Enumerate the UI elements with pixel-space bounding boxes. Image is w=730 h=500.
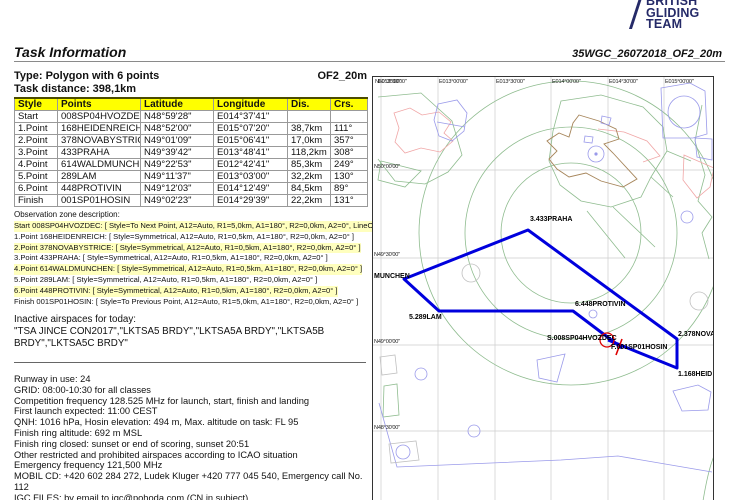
task-map: N50°30'00"E012°30'00"E013°00'00"E013°30'… [372, 76, 714, 500]
waypoint-label: F.001SP01HOSIN [611, 344, 667, 351]
table-cell: 85,3km [288, 159, 331, 171]
table-cell: E014°12'49" [214, 183, 288, 195]
grid-latitude-label: N49°30'00" [374, 252, 400, 258]
waypoint-label: S.008SP04HVOZDEC [547, 335, 617, 342]
table-row: Finish001SP01HOSINN49°02'23"E014°29'39"2… [15, 195, 368, 207]
table-cell: 289LAM [58, 171, 141, 183]
briefing-line: Finish ring closed: sunset or end of sco… [14, 439, 370, 450]
table-cell: 89° [331, 183, 368, 195]
table-row: 5.Point289LAMN49°11'37"E013°03'00"32,2km… [15, 171, 368, 183]
table-cell: E014°37'41" [214, 111, 288, 123]
task-information-page: BRITISH GLIDING TEAM Task Information 35… [0, 0, 730, 500]
waypoint-label: 2.378NOVA [678, 331, 714, 338]
table-cell: N49°01'09" [141, 135, 214, 147]
british-gliding-team-logo: BRITISH GLIDING TEAM [622, 0, 727, 38]
table-cell: 22,2km [288, 195, 331, 207]
table-cell: 448PROTIVIN [58, 183, 141, 195]
grid-latitude-label: N48°30'00" [374, 425, 400, 431]
table-cell: E013°03'00" [214, 171, 288, 183]
table-cell: E012°42'41" [214, 159, 288, 171]
waypoint-table: StylePointsLatitudeLongitudeDis.Crs. Sta… [14, 97, 368, 207]
table-row: 4.Point614WALDMUNCHENN49°22'53"E012°42'4… [15, 159, 368, 171]
task-distance: Task distance: 398,1km [14, 83, 136, 95]
oz-line: 5.Point 289LAM: [ Style=Symmetrical, A12… [14, 275, 367, 286]
briefing-line: Emergency frequency 121,500 MHz [14, 460, 370, 471]
table-cell: 614WALDMUNCHEN [58, 159, 141, 171]
table-cell: 130° [331, 171, 368, 183]
airspace-green-layer [378, 81, 713, 500]
airspace-praha-ctr [547, 115, 637, 187]
grid-longitude-label: E013°00'00" [439, 79, 468, 85]
inactive-airspaces-list: "TSA JINCE CON2017","LKTSA5 BRDY","LKTSA… [14, 326, 366, 349]
table-row: 3.Point433PRAHAN49°39'42"E013°48'41"118,… [15, 147, 368, 159]
column-header: Style [15, 98, 58, 111]
briefing-line: GRID: 08:00-10:30 for all classes [14, 385, 370, 396]
table-cell: Start [15, 111, 58, 123]
table-cell: 168HEIDENREICH [58, 123, 141, 135]
table-row: Start008SP04HVOZDECN48°59'28"E014°37'41" [15, 111, 368, 123]
logo-text: BRITISH GLIDING TEAM [646, 0, 699, 31]
briefing-line: First launch expected: 11:00 CEST [14, 406, 370, 417]
oz-line-text: 5.Point 289LAM: [ Style=Symmetrical, A12… [14, 275, 317, 286]
briefing-line: MOBIL CD: +420 602 284 272, Ludek Kluger… [14, 471, 370, 493]
table-cell [331, 111, 368, 123]
table-cell: 433PRAHA [58, 147, 141, 159]
table-cell: 131° [331, 195, 368, 207]
briefing-line: IGC FILES: by email to igc@pohoda.com (C… [14, 493, 370, 500]
table-cell: 357° [331, 135, 368, 147]
document-reference: 35WGC_26072018_OF2_20m [572, 48, 722, 60]
oz-line-text: 2.Point 378NOVABYSTRICE: [ Style=Symmetr… [14, 243, 361, 254]
oz-line-text: 4.Point 614WALDMUNCHEN: [ Style=Symmetri… [14, 264, 362, 275]
grid-longitude-label: E013°30'00" [496, 79, 525, 85]
oz-line-text: 1.Point 168HEIDENREICH: [ Style=Symmetri… [14, 232, 354, 243]
table-cell: E015°06'41" [214, 135, 288, 147]
table-cell: 001SP01HOSIN [58, 195, 141, 207]
observation-zone-title: Observation zone description: [14, 210, 120, 219]
oz-line-text: 6.Point 448PROTIVIN: [ Style=Symmetrical… [14, 286, 338, 297]
waypoint-label: 5.289LAM [409, 314, 442, 321]
grid-longitude-label: E014°00'00" [552, 79, 581, 85]
oz-line-text: Start 008SP04HVOZDEC: [ Style=To Next Po… [14, 221, 383, 232]
briefing-line: QNH: 1016 hPa, Hosin elevation: 494 m, M… [14, 417, 370, 428]
table-row: 2.Point378NOVABYSTRICEN49°01'09"E015°06'… [15, 135, 368, 147]
waypoint-label: 6.448PROTIVIN [575, 301, 626, 308]
task-code: OF2_20m [14, 70, 367, 82]
grid-longitude-label: E014°30'00" [609, 79, 638, 85]
table-cell: 308° [331, 147, 368, 159]
table-cell: 17,0km [288, 135, 331, 147]
table-cell: 84,5km [288, 183, 331, 195]
table-cell: N49°22'53" [141, 159, 214, 171]
table-cell: 2.Point [15, 135, 58, 147]
briefing-line: Runway in use: 24 [14, 374, 370, 385]
table-cell: N49°12'03" [141, 183, 214, 195]
oz-line: 4.Point 614WALDMUNCHEN: [ Style=Symmetri… [14, 264, 367, 275]
waypoint-table-body: Start008SP04HVOZDECN48°59'28"E014°37'41"… [15, 111, 368, 207]
table-cell: Finish [15, 195, 58, 207]
section-divider [14, 362, 366, 363]
table-cell: 3.Point [15, 147, 58, 159]
table-cell: 118,2km [288, 147, 331, 159]
oz-line: 1.Point 168HEIDENREICH: [ Style=Symmetri… [14, 232, 367, 243]
table-cell: N48°52'00" [141, 123, 214, 135]
briefing-notes: Runway in use: 24GRID: 08:00-10:30 for a… [14, 374, 370, 500]
header-row: StylePointsLatitudeLongitudeDis.Crs. [15, 98, 368, 111]
briefing-line: Competition frequency 128.525 MHz for la… [14, 396, 370, 407]
column-header: Latitude [141, 98, 214, 111]
grid-longitude-label: E015°00'00" [665, 79, 694, 85]
oz-line: 3.Point 433PRAHA: [ Style=Symmetrical, A… [14, 253, 367, 264]
table-cell: E015°07'20" [214, 123, 288, 135]
grid-latitude-label: N49°00'00" [374, 339, 400, 345]
table-cell: 6.Point [15, 183, 58, 195]
briefing-line: Finish ring altitude: 692 m MSL [14, 428, 370, 439]
logo-line-3: TEAM [646, 19, 699, 31]
waypoint-label: 3.433PRAHA [530, 216, 572, 223]
column-header: Points [58, 98, 141, 111]
table-cell: E013°48'41" [214, 147, 288, 159]
table-cell: 249° [331, 159, 368, 171]
map-gray-shapes [380, 264, 708, 463]
table-row: 1.Point168HEIDENREICHN48°52'00"E015°07'2… [15, 123, 368, 135]
column-header: Longitude [214, 98, 288, 111]
table-cell: 1.Point [15, 123, 58, 135]
table-cell: 4.Point [15, 159, 58, 171]
page-title: Task Information [14, 44, 126, 60]
table-cell: 378NOVABYSTRICE [58, 135, 141, 147]
waypoint-label: MUNCHEN [374, 273, 410, 280]
map-gridlines [373, 77, 713, 500]
logo-slash-icon [629, 0, 642, 29]
oz-line: Finish 001SP01HOSIN: [ Style=To Previous… [14, 297, 367, 308]
grid-longitude-label: E012°30'00" [378, 79, 407, 85]
table-cell: E014°29'39" [214, 195, 288, 207]
table-cell: N48°59'28" [141, 111, 214, 123]
table-row: 6.Point448PROTIVINN49°12'03"E014°12'49"8… [15, 183, 368, 195]
oz-line-text: Finish 001SP01HOSIN: [ Style=To Previous… [14, 297, 358, 308]
oz-line: 2.Point 378NOVABYSTRICE: [ Style=Symmetr… [14, 243, 367, 254]
table-cell: N49°02'23" [141, 195, 214, 207]
grid-latitude-label: N50°00'00" [374, 164, 400, 170]
table-cell: 111° [331, 123, 368, 135]
table-cell: 008SP04HVOZDEC [58, 111, 141, 123]
table-cell: 5.Point [15, 171, 58, 183]
oz-line: Start 008SP04HVOZDEC: [ Style=To Next Po… [14, 221, 367, 232]
airspace-blue-layer [379, 83, 712, 472]
header-divider [14, 61, 725, 62]
table-cell: 38,7km [288, 123, 331, 135]
column-header: Crs. [331, 98, 368, 111]
column-header: Dis. [288, 98, 331, 111]
table-cell: N49°11'37" [141, 171, 214, 183]
waypoint-label: 1.168HEID [678, 371, 712, 378]
inactive-airspaces-title: Inactive airspaces for today: [14, 314, 136, 325]
table-cell [288, 111, 331, 123]
observation-zone-list: Start 008SP04HVOZDEC: [ Style=To Next Po… [14, 221, 367, 307]
oz-line: 6.Point 448PROTIVIN: [ Style=Symmetrical… [14, 286, 367, 297]
table-cell: N49°39'42" [141, 147, 214, 159]
waypoint-table-head: StylePointsLatitudeLongitudeDis.Crs. [15, 98, 368, 111]
briefing-line: Other restricted and prohibited airspace… [14, 450, 370, 461]
oz-line-text: 3.Point 433PRAHA: [ Style=Symmetrical, A… [14, 253, 328, 264]
table-cell: 32,2km [288, 171, 331, 183]
